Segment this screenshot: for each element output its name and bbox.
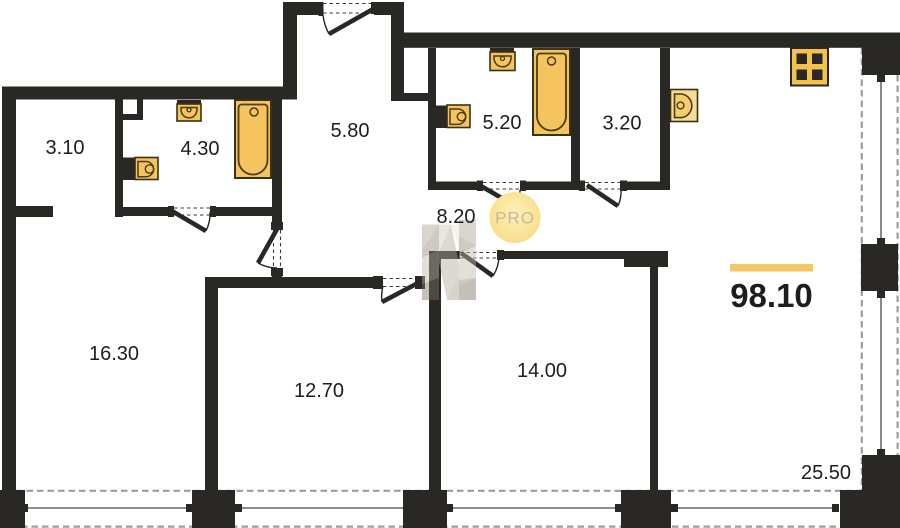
svg-text:14.00: 14.00 (517, 360, 567, 382)
svg-text:PRO: PRO (495, 209, 535, 228)
svg-text:5.80: 5.80 (331, 120, 370, 142)
svg-text:8.20: 8.20 (437, 206, 476, 228)
svg-text:25.50: 25.50 (801, 462, 851, 484)
svg-text:98.10: 98.10 (730, 277, 813, 314)
svg-text:5.20: 5.20 (483, 112, 522, 134)
svg-text:16.30: 16.30 (89, 343, 139, 365)
svg-text:3.20: 3.20 (603, 113, 642, 135)
svg-text:12.70: 12.70 (294, 380, 344, 402)
svg-text:3.10: 3.10 (46, 137, 85, 159)
svg-text:4.30: 4.30 (181, 138, 220, 160)
